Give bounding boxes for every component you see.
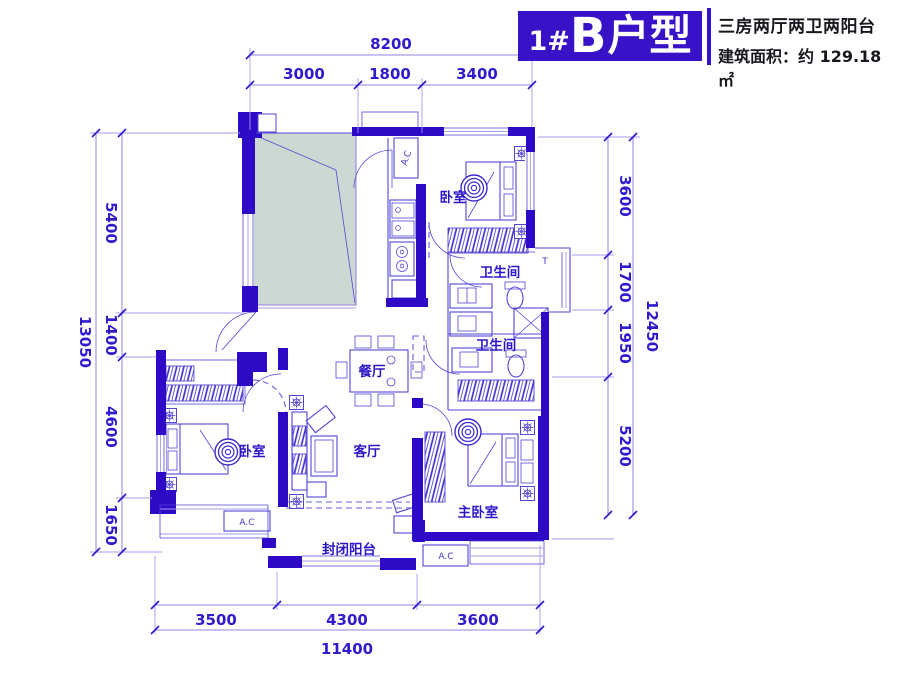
water-heater-mark: T (541, 257, 548, 267)
window-master-bottom (470, 541, 544, 564)
bed-icon-left-bedroom (163, 409, 242, 492)
void-area (252, 133, 356, 308)
dim-left-seg-2: 1400 (102, 314, 120, 356)
dim-left-seg-1: 5400 (102, 202, 120, 244)
ac-unit-balcony: A.C (239, 518, 254, 528)
unit-info: 三房两厅两卫两阳台 建筑面积：约 129.18 ㎡ (718, 12, 900, 91)
dim-left-total: 13050 (76, 316, 94, 368)
bed-icon-top-bedroom (461, 147, 529, 239)
unit-type-suffix: 户型 (608, 15, 692, 57)
dim-right-seg-1: 3600 (616, 175, 634, 217)
room-label-bedroom-left: 卧室 (239, 443, 266, 460)
room-label-master-bedroom: 主卧室 (458, 504, 499, 521)
room-label-bath-lower: 卫生间 (476, 337, 517, 354)
dim-right-seg-4: 5200 (616, 425, 634, 467)
bath-bay-window (535, 248, 570, 312)
unit-letter: B (570, 12, 608, 60)
dim-bottom-seg-1: 3500 (195, 611, 237, 629)
dim-top-seg-3: 3400 (456, 65, 498, 83)
room-label-balcony: 封闭阳台 (322, 541, 376, 558)
unit-number: 1# (528, 28, 569, 55)
unit-title-block: 1# B 户型 (518, 11, 702, 61)
floorplan-page: 卧室 卫生间 卫生间 餐厅 客厅 卧室 主卧室 封闭阳台 A.C A.C A.C… (0, 0, 900, 675)
dim-top-seg-2: 1800 (369, 65, 411, 83)
window-top-bedroom (444, 126, 508, 137)
layout-description: 三房两厅两卫两阳台 (718, 12, 900, 37)
ac-unit-master: A.C (438, 552, 453, 562)
dim-right-seg-3: 1950 (616, 322, 634, 364)
window-balcony-bottom (268, 556, 416, 570)
window-right-top (525, 152, 536, 210)
dim-bottom-seg-3: 3600 (457, 611, 499, 629)
bathroom-upper-fixtures (450, 282, 548, 338)
room-label-bedroom-top: 卧室 (440, 189, 467, 206)
dimension-bottom: 3500 4300 3600 11400 (151, 545, 544, 658)
dim-top-total: 8200 (370, 35, 412, 53)
living-room-furniture (290, 396, 338, 509)
title-divider (707, 8, 711, 65)
floor-plan-drawing: 卧室 卫生间 卫生间 餐厅 客厅 卧室 主卧室 封闭阳台 A.C A.C A.C… (0, 0, 900, 675)
dim-top-seg-1: 3000 (283, 65, 325, 83)
dimension-right: 3600 1700 1950 5200 12450 (538, 133, 661, 539)
ac-unit-kitchen: A.C (400, 150, 415, 168)
dim-right-total: 12450 (643, 300, 661, 352)
bed-icon-master-bedroom (455, 419, 535, 501)
dimension-top: 8200 3000 1800 3400 (246, 35, 536, 133)
room-label-living: 客厅 (353, 443, 381, 460)
dim-left-seg-3: 4600 (102, 406, 120, 448)
room-label-dining: 餐厅 (358, 363, 386, 380)
dim-right-seg-2: 1700 (616, 261, 634, 303)
area-text: 建筑面积：约 129.18 ㎡ (718, 43, 900, 91)
balcony-items (286, 494, 417, 533)
dim-bottom-seg-2: 4300 (326, 611, 368, 629)
room-label-bath-upper: 卫生间 (480, 264, 521, 281)
window-void-left (242, 214, 254, 286)
window-left-bedroom (155, 435, 166, 472)
dim-bottom-total: 11400 (321, 640, 373, 658)
kitchen-fixtures (362, 112, 418, 298)
dim-left-seg-4: 1650 (102, 504, 120, 546)
